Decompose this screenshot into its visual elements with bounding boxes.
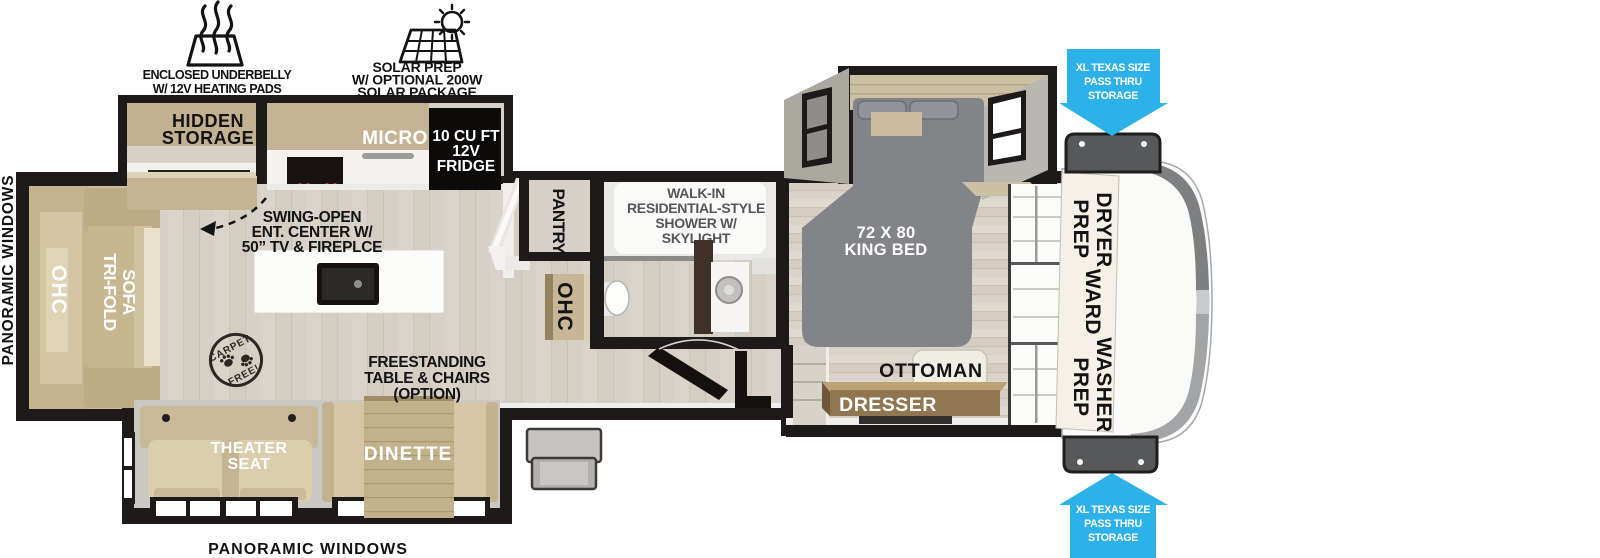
svg-text:DINETTE: DINETTE bbox=[364, 444, 452, 465]
svg-text:PANORAMIC WINDOWS: PANORAMIC WINDOWS bbox=[208, 541, 408, 558]
svg-text:PANTRY: PANTRY bbox=[549, 189, 568, 255]
svg-text:THEATER: THEATER bbox=[211, 440, 288, 457]
svg-text:TABLE & CHAIRS: TABLE & CHAIRS bbox=[364, 370, 490, 387]
svg-text:SHOWER W/: SHOWER W/ bbox=[655, 215, 737, 231]
svg-text:W/ 12V HEATING PADS: W/ 12V HEATING PADS bbox=[153, 82, 282, 96]
svg-text:ENCLOSED UNDERBELLY: ENCLOSED UNDERBELLY bbox=[143, 68, 293, 82]
svg-text:SOLAR PACKAGE: SOLAR PACKAGE bbox=[357, 84, 476, 100]
svg-text:SEAT: SEAT bbox=[228, 456, 271, 473]
svg-text:OHC: OHC bbox=[47, 265, 70, 315]
svg-text:PREP: PREP bbox=[1069, 199, 1092, 258]
svg-text:STORAGE: STORAGE bbox=[1088, 90, 1138, 102]
svg-text:TRI-FOLD: TRI-FOLD bbox=[100, 253, 120, 331]
svg-text:PASS THRU: PASS THRU bbox=[1084, 518, 1142, 530]
svg-text:RESIDENTIAL-STYLE: RESIDENTIAL-STYLE bbox=[627, 200, 765, 216]
svg-text:OTTOMAN: OTTOMAN bbox=[879, 360, 983, 382]
svg-text:WALK-IN: WALK-IN bbox=[667, 185, 725, 201]
svg-text:KING BED: KING BED bbox=[844, 241, 927, 259]
svg-text:50” TV & FIREPLCE: 50” TV & FIREPLCE bbox=[242, 239, 382, 256]
svg-text:WASHER: WASHER bbox=[1092, 337, 1115, 432]
svg-text:(OPTION): (OPTION) bbox=[393, 386, 460, 403]
svg-text:PASS THRU: PASS THRU bbox=[1084, 76, 1142, 88]
svg-text:DRESSER: DRESSER bbox=[839, 394, 937, 416]
svg-text:FRIDGE: FRIDGE bbox=[437, 158, 496, 175]
svg-text:MICRO: MICRO bbox=[362, 128, 428, 149]
svg-text:XL TEXAS SIZE: XL TEXAS SIZE bbox=[1076, 62, 1150, 74]
svg-text:STORAGE: STORAGE bbox=[162, 128, 254, 148]
svg-text:PREP: PREP bbox=[1069, 357, 1092, 416]
svg-text:OHC: OHC bbox=[553, 282, 576, 332]
svg-text:STORAGE: STORAGE bbox=[1088, 532, 1138, 544]
svg-text:XL TEXAS SIZE: XL TEXAS SIZE bbox=[1076, 504, 1150, 516]
svg-text:SOFA: SOFA bbox=[119, 269, 139, 316]
svg-text:DRYER: DRYER bbox=[1092, 192, 1115, 267]
svg-text:72 X 80: 72 X 80 bbox=[857, 224, 916, 242]
svg-text:WARD: WARD bbox=[1081, 269, 1104, 335]
svg-text:FREESTANDING: FREESTANDING bbox=[368, 354, 486, 371]
svg-text:PANORAMIC WINDOWS: PANORAMIC WINDOWS bbox=[0, 175, 17, 366]
